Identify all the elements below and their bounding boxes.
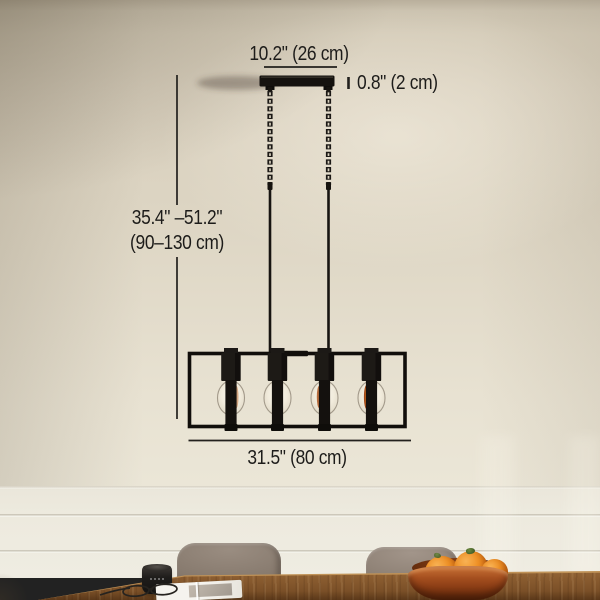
frame-top-connector: [284, 351, 308, 357]
label-hanging-height-cm: (90–130 cm): [90, 231, 264, 256]
fruit-stem: [434, 553, 442, 559]
suspension-chain-left: [268, 87, 273, 190]
label-fixture-width: 31.5" (80 cm): [210, 446, 384, 471]
label-hanging-height: 35.4" –51.2" (90–130 cm): [90, 206, 264, 256]
label-hanging-height-inches: 35.4" –51.2": [90, 206, 264, 231]
product-dimension-image: 10.2" (26 cm) 0.8" (2 cm) 35.4" –51.2" (…: [0, 0, 600, 600]
wooden-bowl: [408, 566, 508, 600]
chandelier-diagram: [0, 0, 600, 600]
label-canopy-thickness: 0.8" (2 cm): [357, 71, 438, 96]
bulb-socket-1: [218, 348, 245, 431]
bulb-socket-2: [264, 348, 291, 431]
corner-shadow: [0, 568, 34, 600]
bulb-socket-3: [311, 348, 338, 431]
label-canopy-width: 10.2" (26 cm): [212, 42, 386, 67]
eyeglasses: [98, 578, 180, 600]
suspension-chain-right: [326, 87, 331, 190]
bulb-socket-4: [358, 348, 385, 431]
